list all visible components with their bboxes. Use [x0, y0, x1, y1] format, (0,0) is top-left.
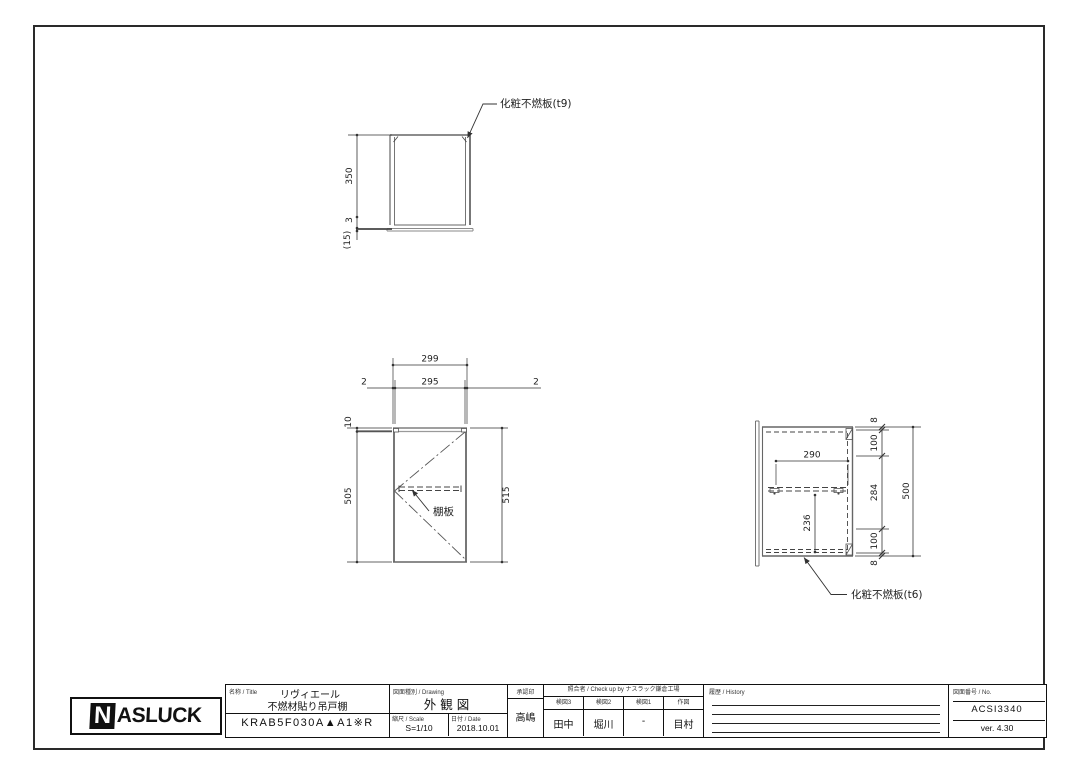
check-col-1-label: 検図1 [624, 697, 663, 710]
scale-label: 縮尺 / Scale [392, 714, 424, 723]
dim-2-right: 2 [533, 378, 539, 388]
stamp-label: 承認印 [508, 687, 543, 696]
dim-505: 505 [344, 487, 354, 504]
dim-3: 3 [345, 217, 355, 223]
dim-2-left: 2 [361, 378, 367, 388]
leader-line-shelf [412, 490, 429, 511]
divider [508, 698, 543, 699]
dim-500: 500 [902, 482, 912, 499]
callout-shelf: 棚板 [433, 505, 454, 518]
history-row-line [712, 705, 940, 706]
check-col-2-name: 堀川 [584, 716, 623, 731]
date-value: 2018.10.01 [449, 723, 507, 733]
front-view: 棚板 299 295 2 2 [344, 355, 541, 564]
title-block: 名称 / Title リヴィエール 不燃材貼り吊戸棚 KRAB5F030A▲A1… [225, 684, 1047, 738]
top-view: 350 3 (15) 化粧不燃板(t9) [343, 97, 572, 249]
leader-line-t6 [804, 558, 847, 595]
drawing-number-cell: 図面番号 / No. ACSI3340 ver. 4.30 [949, 685, 1045, 737]
callout-t6: 化粧不燃板(t6) [851, 588, 923, 601]
check-col-2: 検図2 堀川 [584, 697, 624, 736]
dim-236: 236 [803, 514, 813, 531]
check-col-3: 検図3 田中 [544, 697, 584, 736]
model-number: KRAB5F030A▲A1※R [226, 716, 389, 729]
version: ver. 4.30 [949, 723, 1045, 733]
front-view-dimensions: 299 295 2 2 10 505 [344, 355, 541, 564]
drafter-col: 作図 目村 [664, 697, 703, 736]
callout-t9: 化粧不燃板(t9) [500, 97, 572, 110]
drawing-type: 外観図 [390, 694, 507, 713]
product-name: 不燃材貼り吊戸棚 [226, 698, 389, 713]
divider [226, 713, 389, 714]
logo-n-mark: N [89, 703, 116, 729]
company-logo: N ASLUCK [70, 697, 222, 735]
name-label: 名称 / Title [229, 687, 257, 696]
history-row-line [712, 732, 940, 733]
dim-515: 515 [502, 486, 512, 503]
dim-15: (15) [343, 231, 353, 249]
divider [953, 720, 1045, 721]
logo-text: ASLUCK [117, 704, 203, 728]
dim-290: 290 [803, 451, 820, 461]
check-col-1: 検図1 - [624, 697, 664, 736]
dim-chain-8-bottom: 8 [870, 560, 880, 566]
dim-chain-8-top: 8 [870, 417, 880, 423]
dim-295: 295 [421, 378, 438, 388]
date-label: 日付 / Date [451, 714, 481, 723]
title-cell: 名称 / Title リヴィエール 不燃材貼り吊戸棚 KRAB5F030A▲A1… [226, 685, 390, 737]
cad-drawing-canvas: 350 3 (15) 化粧不燃板(t9) [0, 0, 1080, 764]
divider [953, 701, 1045, 702]
drawing-type-cell: 図面種別 / Drawing 外観図 縮尺 / Scale S=1/10 日付 … [390, 685, 508, 737]
side-view: 290 236 8 1 [756, 417, 923, 601]
history-row-line [712, 723, 940, 724]
leader-line-t9 [468, 104, 498, 138]
check-col-3-name: 田中 [544, 716, 583, 731]
check-col-3-label: 検図3 [544, 697, 583, 710]
history-cell: 履歴 / History [704, 685, 949, 737]
dim-chain-100-bottom: 100 [870, 532, 880, 549]
check-header: 照合者 / Check up by ナスラック鎌倉工場 [544, 685, 703, 697]
check-col-2-label: 検図2 [584, 697, 623, 710]
dim-350: 350 [345, 167, 355, 184]
drafter-label: 作図 [664, 697, 703, 710]
check-section: 照合者 / Check up by ナスラック鎌倉工場 検図3 田中 検図2 堀… [544, 685, 704, 737]
dim-chain-284: 284 [870, 484, 880, 501]
date-cell: 日付 / Date 2018.10.01 [448, 713, 507, 736]
dim-chain-100-top: 100 [870, 434, 880, 451]
dim-299: 299 [421, 355, 438, 365]
history-label: 履歴 / History [709, 687, 745, 696]
approval-stamp-cell: 承認印 高嶋 [508, 685, 544, 737]
drawing-number: ACSI3340 [949, 704, 1045, 715]
number-label: 図面番号 / No. [953, 687, 991, 696]
approver-name: 高嶋 [508, 709, 543, 724]
dim-10: 10 [344, 416, 354, 428]
scale-cell: 縮尺 / Scale S=1/10 [390, 713, 448, 736]
scale-value: S=1/10 [390, 723, 448, 733]
history-row-line [712, 714, 940, 715]
top-view-dimensions: 350 3 (15) [343, 134, 392, 250]
drafter-name: 目村 [664, 716, 703, 731]
check-col-1-name: - [624, 716, 663, 727]
